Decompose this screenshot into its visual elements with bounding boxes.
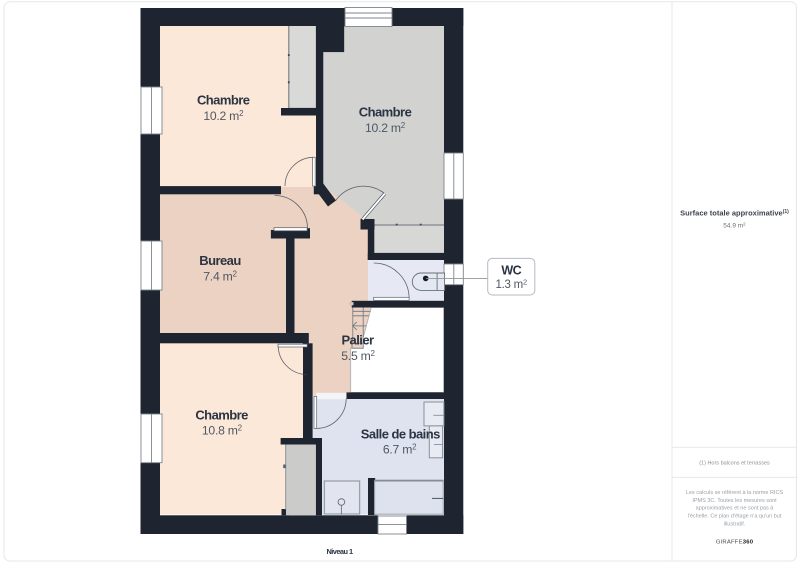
svg-text:l'échelle. Ce plan d'étage n'a: l'échelle. Ce plan d'étage n'a qu'un but bbox=[688, 514, 782, 520]
svg-text:illustratif.: illustratif. bbox=[724, 522, 746, 528]
svg-text:6.7 m2: 6.7 m2 bbox=[383, 443, 417, 457]
svg-text:Niveau 1: Niveau 1 bbox=[327, 547, 353, 556]
svg-text:Les calculs se réfèrent à la n: Les calculs se réfèrent à la norme RICS bbox=[686, 490, 784, 496]
svg-text:Chambre: Chambre bbox=[359, 104, 412, 119]
svg-text:10.2 m2: 10.2 m2 bbox=[365, 121, 406, 135]
svg-text:Surface totale approximative(1: Surface totale approximative(1) bbox=[680, 208, 789, 217]
svg-text:1.3 m2: 1.3 m2 bbox=[495, 278, 527, 292]
svg-text:10.8 m2: 10.8 m2 bbox=[202, 424, 243, 438]
svg-text:7.4 m2: 7.4 m2 bbox=[203, 270, 237, 284]
svg-text:(1) Hors balcons et terrasses: (1) Hors balcons et terrasses bbox=[699, 461, 770, 467]
svg-text:approximatives et ne sont pas: approximatives et ne sont pas à bbox=[696, 506, 775, 512]
svg-text:Chambre: Chambre bbox=[195, 408, 248, 423]
svg-text:10.2 m2: 10.2 m2 bbox=[203, 109, 244, 123]
svg-text:WC: WC bbox=[501, 264, 521, 278]
svg-text:5.5 m2: 5.5 m2 bbox=[341, 349, 375, 363]
svg-text:54.9 m2: 54.9 m2 bbox=[723, 222, 746, 230]
svg-text:GIRAFFE360: GIRAFFE360 bbox=[716, 540, 754, 546]
svg-text:Palier: Palier bbox=[341, 333, 374, 348]
svg-text:IPMS 3C. Toutes les mesures so: IPMS 3C. Toutes les mesures sont bbox=[692, 498, 777, 504]
svg-text:Chambre: Chambre bbox=[197, 93, 250, 108]
svg-text:Salle de bains: Salle de bains bbox=[361, 426, 440, 441]
svg-text:Bureau: Bureau bbox=[199, 253, 241, 268]
